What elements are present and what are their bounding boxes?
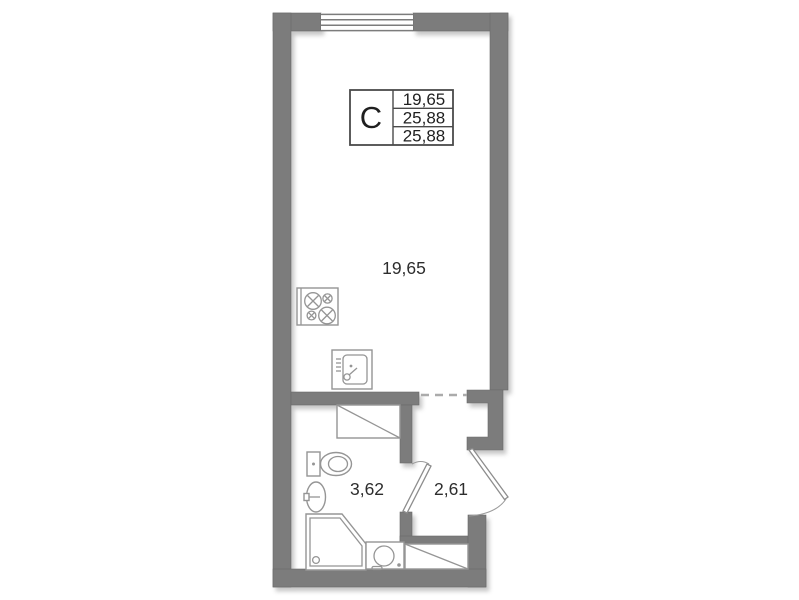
shower-outline <box>306 514 366 570</box>
area-table-value-2: 25,88 <box>403 108 446 127</box>
toilet-tank-button <box>312 463 315 466</box>
window-opening <box>321 13 413 31</box>
bathroom-area-label: 3,62 <box>350 479 384 499</box>
washbasin-tap <box>304 494 309 501</box>
sink-drain-dot <box>350 365 353 368</box>
wall-bottom <box>273 569 486 587</box>
washbasin-icon <box>304 482 326 512</box>
wall-storage-top <box>400 536 468 544</box>
living-room-area-label: 19,65 <box>382 258 426 278</box>
area-table-value-3: 25,88 <box>403 127 446 146</box>
unit-type-letter: C <box>360 100 382 135</box>
cooktop-icon <box>297 288 338 325</box>
entrance-door <box>469 449 508 517</box>
interior-door-swing-arc <box>412 462 429 465</box>
entrance-door-leaf <box>469 449 508 500</box>
shower-cabin-icon <box>306 514 366 570</box>
storage-closet-icon <box>405 544 468 569</box>
wall-left <box>273 13 291 587</box>
floorplan-svg: C 19,65 25,88 25,88 19,65 3,62 2,61 <box>0 0 799 600</box>
washing-machine-icon <box>366 542 404 570</box>
entrance-door-swing-arc <box>469 499 506 516</box>
toilet-icon <box>307 452 352 476</box>
wall-right-niche-block <box>467 390 503 450</box>
interior-door-leaf <box>403 464 431 513</box>
floorplan-canvas: C 19,65 25,88 25,88 19,65 3,62 2,61 <box>0 0 799 600</box>
kitchen-sink-icon <box>332 350 372 389</box>
interior-door <box>403 462 431 514</box>
wall-right-upper <box>490 13 508 390</box>
washing-machine-knob <box>397 563 401 567</box>
hallway-area-label: 2,61 <box>434 479 468 499</box>
wall-bath-hall-upper <box>400 405 412 463</box>
wall-room-divider <box>291 392 419 405</box>
window <box>321 13 413 31</box>
unit-area-table: C 19,65 25,88 25,88 <box>350 90 453 146</box>
wardrobe-icon <box>337 405 400 438</box>
area-table-value-1: 19,65 <box>403 90 446 109</box>
